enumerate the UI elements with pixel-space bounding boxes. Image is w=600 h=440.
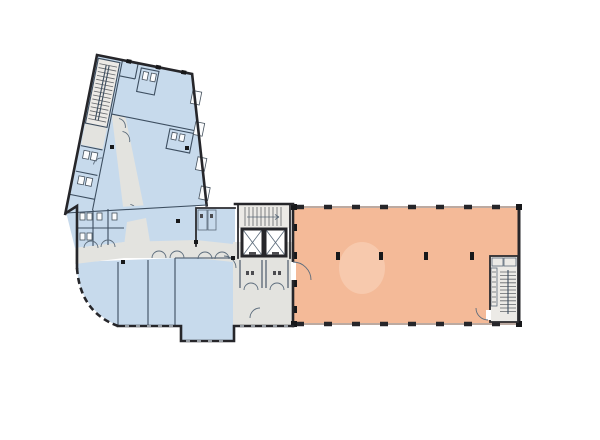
elevator-shaft-right	[265, 229, 286, 256]
stair-door-gap	[486, 310, 491, 320]
floorplan-canvas	[0, 0, 600, 440]
elevator-shaft-left	[242, 229, 263, 256]
rooms-lower-block	[75, 256, 233, 341]
hall-floor-patch	[339, 242, 385, 294]
open-hall-floor	[293, 206, 519, 325]
room-north-of-core	[196, 208, 235, 246]
open-hall	[291, 204, 522, 327]
floorplan-page	[0, 0, 600, 440]
corridor-connector	[124, 218, 150, 246]
core-stair	[238, 204, 290, 228]
